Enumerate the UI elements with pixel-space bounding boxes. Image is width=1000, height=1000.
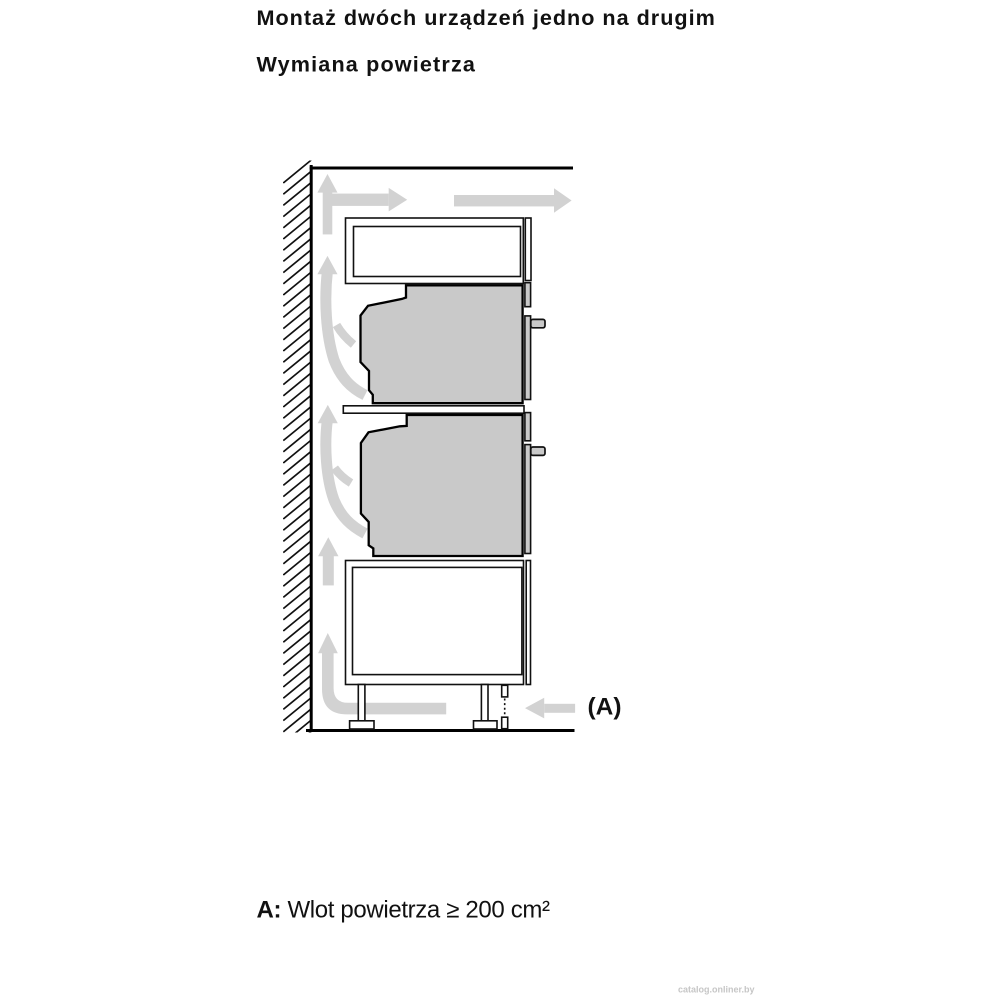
svg-text:(A): (A) xyxy=(588,694,622,721)
svg-text:A: Wlot powietrza ≥ 200 cm²: A: Wlot powietrza ≥ 200 cm² xyxy=(257,896,550,923)
svg-text:Wymiana powietrza: Wymiana powietrza xyxy=(257,52,477,77)
svg-text:Montaż dwóch urządzeń jedno na: Montaż dwóch urządzeń jedno na drugim xyxy=(257,5,716,30)
svg-text:catalog.onliner.by: catalog.onliner.by xyxy=(678,985,755,995)
